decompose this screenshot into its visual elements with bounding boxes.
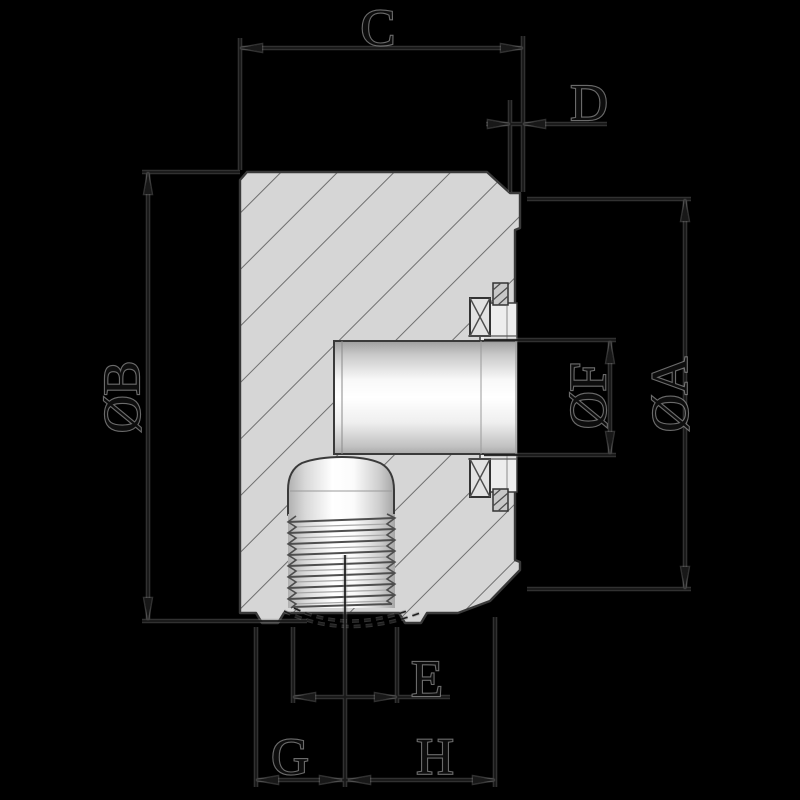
dim-label-dia-f: ØF [560, 363, 617, 429]
thread-body [288, 514, 395, 608]
technical-drawing: C D ØB ØA ØF E G H [0, 0, 800, 800]
thread-profile [288, 514, 395, 608]
dim-label-dia-b: ØB [94, 361, 151, 433]
bearing-race-bottom [470, 459, 490, 497]
part-section [240, 172, 520, 623]
dim-label-e: E [411, 651, 443, 708]
retaining-ring-top [493, 283, 508, 305]
dim-label-d: D [570, 75, 608, 132]
retaining-ring-bottom [493, 489, 508, 511]
bearing-race-top [470, 298, 490, 336]
bore-cylinder [333, 341, 517, 454]
threaded-stud [288, 457, 395, 608]
dim-label-g: G [271, 729, 309, 786]
dim-label-h: H [416, 729, 454, 786]
bore-surface [333, 341, 517, 454]
dim-label-dia-a: ØA [642, 356, 699, 432]
stud-shank [288, 457, 394, 515]
dim-label-c: C [361, 0, 396, 57]
